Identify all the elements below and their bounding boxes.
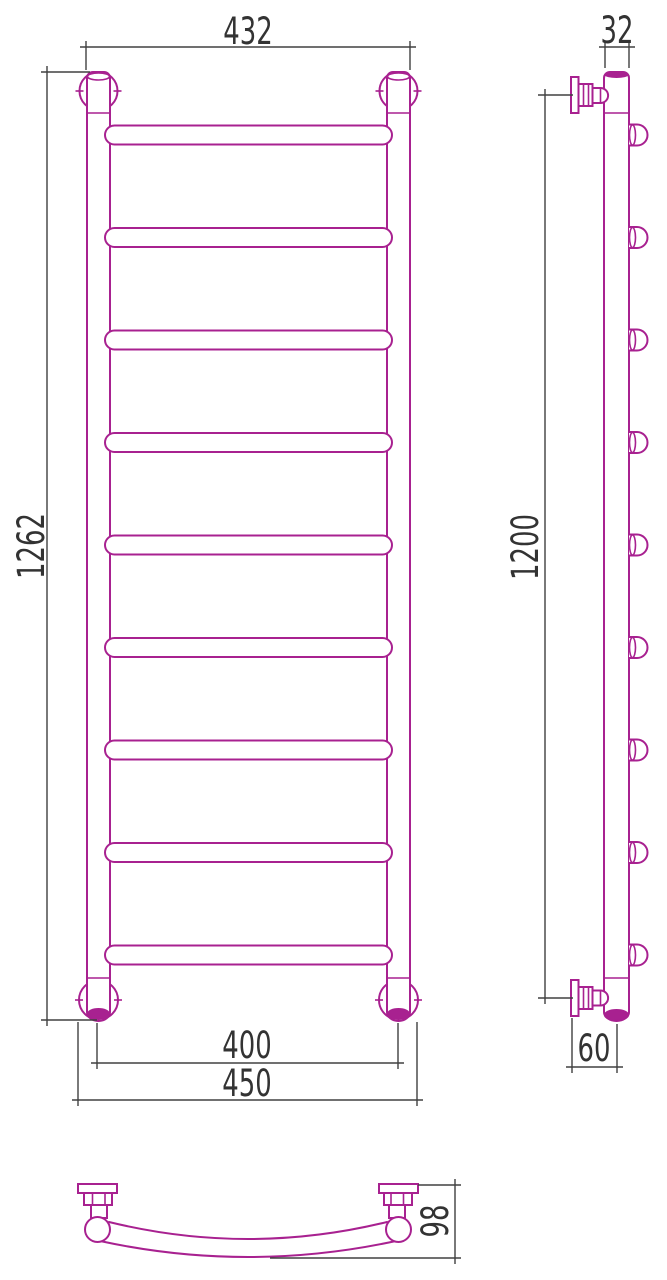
dim-label-60: 60 bbox=[578, 1026, 611, 1070]
side-rung-bumps bbox=[629, 125, 648, 966]
dim-label-432: 432 bbox=[223, 9, 272, 53]
front-rungs bbox=[105, 126, 392, 965]
side-bottom-bracket bbox=[571, 980, 608, 1016]
rung bbox=[105, 946, 392, 965]
rung-bump bbox=[629, 535, 648, 556]
post-cross-section bbox=[386, 1217, 411, 1242]
side-tube bbox=[604, 72, 629, 1021]
bracket-flange bbox=[78, 1184, 117, 1193]
rung-bump bbox=[629, 637, 648, 658]
bracket-hex-nut bbox=[579, 84, 593, 106]
rung bbox=[105, 741, 392, 760]
rung-bump bbox=[629, 125, 648, 146]
dim-label-98: 98 bbox=[413, 1205, 457, 1238]
rung bbox=[105, 126, 392, 145]
side-tube-bottom-cap bbox=[605, 1010, 629, 1021]
dimension-overall-height: 1262 bbox=[9, 66, 97, 1026]
technical-drawing: 432 1262 400 450 32 bbox=[0, 0, 667, 1280]
bottom-view bbox=[78, 1184, 418, 1257]
rung-bump bbox=[629, 945, 648, 966]
dim-label-1200: 1200 bbox=[503, 514, 547, 580]
rung-bump bbox=[629, 432, 648, 453]
post-cross-section bbox=[85, 1217, 110, 1242]
side-view bbox=[571, 72, 648, 1022]
front-view bbox=[75, 72, 422, 1021]
bracket-hex-nut bbox=[579, 987, 593, 1009]
rung bbox=[105, 536, 392, 555]
bracket-flange bbox=[379, 1184, 418, 1193]
rung bbox=[105, 331, 392, 350]
side-tube-top-cap bbox=[605, 72, 628, 78]
bracket-hex-nut bbox=[84, 1193, 112, 1205]
dimension-overall-width: 432 bbox=[80, 9, 416, 70]
rung-bump bbox=[629, 330, 648, 351]
rung bbox=[105, 228, 392, 247]
dim-label-1262: 1262 bbox=[9, 513, 53, 579]
dimension-mount-height: 1200 bbox=[503, 89, 573, 1004]
dim-label-450: 450 bbox=[222, 1061, 271, 1105]
dimension-tube-diameter: 32 bbox=[599, 8, 635, 68]
bracket-hex-nut bbox=[384, 1193, 412, 1205]
right-post-bottom-cap bbox=[388, 1009, 410, 1020]
rung bbox=[105, 638, 392, 657]
side-top-bracket bbox=[571, 77, 608, 113]
rung-bump bbox=[629, 227, 648, 248]
rung-bump bbox=[629, 740, 648, 761]
curved-rung-band bbox=[100, 1222, 396, 1257]
rung bbox=[105, 433, 392, 452]
dim-label-32: 32 bbox=[601, 8, 634, 52]
left-post-bottom-cap bbox=[88, 1009, 110, 1020]
rung bbox=[105, 843, 392, 862]
bracket-stem bbox=[91, 1205, 107, 1218]
bracket-stem bbox=[389, 1205, 405, 1218]
rung-bump bbox=[629, 842, 648, 863]
dimension-wall-offset: 60 bbox=[566, 1018, 623, 1073]
